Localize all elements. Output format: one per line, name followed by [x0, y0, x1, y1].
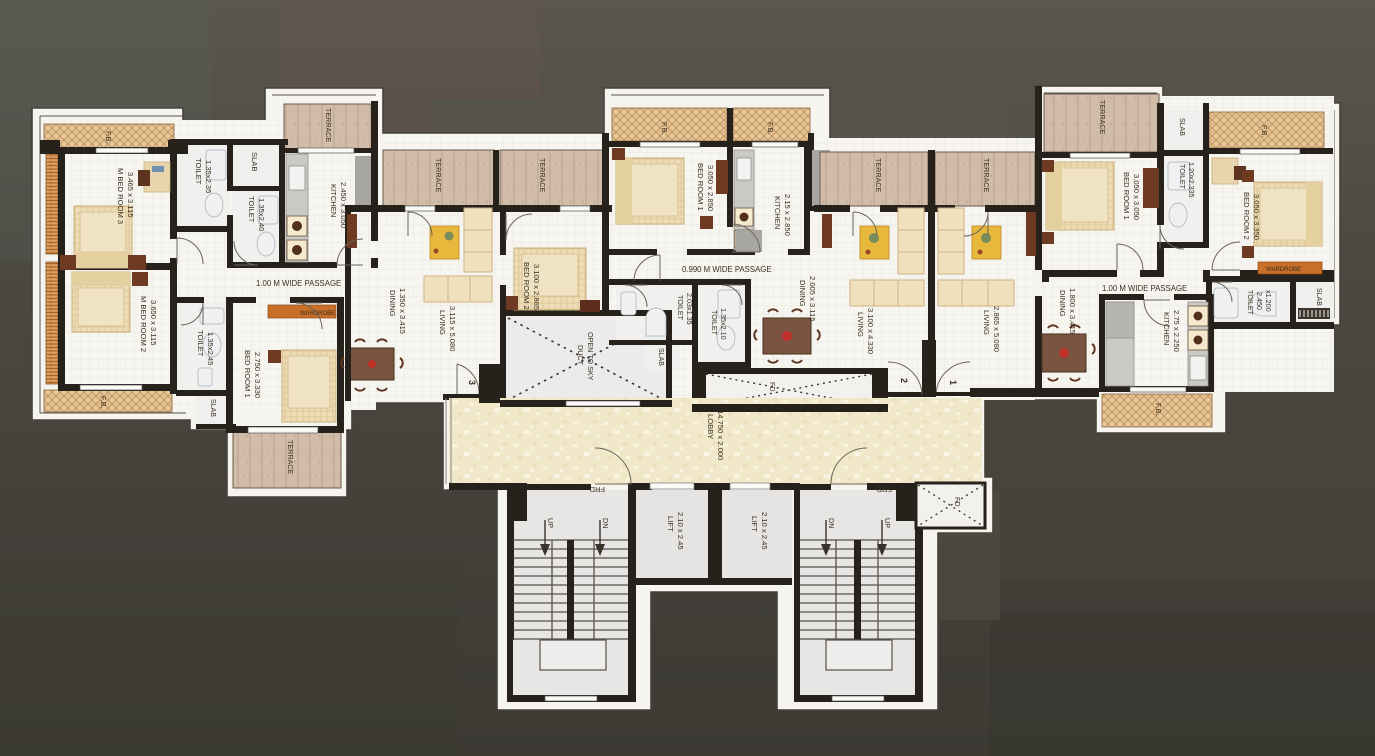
svg-text:M BED ROOM 2: M BED ROOM 2: [139, 296, 148, 352]
svg-text:UP: UP: [883, 518, 892, 528]
svg-text:WARDROBE: WARDROBE: [1266, 267, 1301, 273]
svg-text:1.20x2.335: 1.20x2.335: [1187, 162, 1196, 198]
svg-text:TOILET: TOILET: [247, 196, 256, 223]
svg-text:2.10 x 2.45: 2.10 x 2.45: [760, 512, 769, 550]
svg-text:KITCHEN: KITCHEN: [329, 184, 338, 217]
svg-text:TERRACE: TERRACE: [874, 158, 883, 193]
svg-text:TOILET: TOILET: [196, 330, 205, 357]
svg-text:FD: FD: [953, 497, 962, 507]
svg-text:BED ROOM 1: BED ROOM 1: [1122, 172, 1131, 220]
svg-text:DUCT: DUCT: [576, 345, 585, 366]
svg-text:FD: FD: [768, 382, 777, 392]
svg-text:FRD: FRD: [589, 485, 605, 494]
svg-text:1.350 x 3.415: 1.350 x 3.415: [398, 288, 407, 334]
svg-text:SLAB: SLAB: [209, 399, 216, 417]
svg-text:3.650 x 3.115: 3.650 x 3.115: [149, 300, 158, 345]
svg-text:TOILET: TOILET: [1178, 164, 1187, 190]
svg-text:OPEN TO SKY: OPEN TO SKY: [586, 332, 595, 381]
svg-text:3.050 x 3.350: 3.050 x 3.350: [1252, 194, 1261, 240]
svg-text:SLAB: SLAB: [1178, 118, 1185, 136]
svg-text:TERRACE: TERRACE: [286, 440, 295, 475]
svg-text:3.100 x 4.330: 3.100 x 4.330: [866, 308, 875, 354]
svg-text:BED ROOM 1: BED ROOM 1: [243, 350, 252, 398]
svg-text:UP: UP: [546, 518, 555, 528]
svg-text:1.00 M WIDE PASSAGE: 1.00 M WIDE PASSAGE: [256, 279, 341, 288]
svg-text:BED ROOM 2: BED ROOM 2: [522, 262, 531, 310]
svg-text:BED ROOM 2: BED ROOM 2: [1242, 192, 1251, 240]
svg-text:F.B.: F.B.: [104, 131, 113, 143]
svg-text:2.750 x 3.330: 2.750 x 3.330: [253, 352, 262, 398]
svg-text:SLAB: SLAB: [250, 152, 259, 171]
svg-text:SLAB: SLAB: [657, 348, 664, 366]
svg-text:TERRACE: TERRACE: [434, 158, 443, 193]
svg-text:KITCHEN: KITCHEN: [1162, 312, 1171, 345]
svg-text:3.050 x 2.850: 3.050 x 2.850: [706, 165, 715, 211]
svg-text:LIVING: LIVING: [982, 310, 991, 335]
svg-text:LIVING: LIVING: [438, 310, 447, 335]
svg-text:DN: DN: [827, 518, 836, 528]
svg-text:DINING: DINING: [798, 280, 807, 307]
svg-text:0.990 M WIDE PASSAGE: 0.990 M WIDE PASSAGE: [682, 265, 772, 274]
svg-text:TOILET: TOILET: [1246, 290, 1255, 316]
svg-text:1.35x2.35: 1.35x2.35: [204, 160, 213, 193]
svg-text:TERRACE: TERRACE: [324, 108, 333, 143]
svg-text:F.B.: F.B.: [766, 122, 775, 134]
svg-text:3.050 x 3.050: 3.050 x 3.050: [1132, 174, 1141, 220]
svg-text:1.35x2.10: 1.35x2.10: [719, 308, 728, 340]
svg-text:F.B.: F.B.: [1260, 125, 1269, 137]
svg-text:TERRACE: TERRACE: [1098, 100, 1107, 135]
svg-text:TOILET: TOILET: [676, 295, 685, 321]
svg-text:TOILET: TOILET: [194, 158, 203, 185]
svg-text:F.B.: F.B.: [660, 122, 669, 134]
svg-text:1.35x2.45: 1.35x2.45: [206, 332, 215, 365]
svg-text:2.865 x 5.080: 2.865 x 5.080: [992, 306, 1001, 352]
svg-text:M BED ROOM 3: M BED ROOM 3: [116, 168, 125, 224]
svg-text:2.10 x 2.45: 2.10 x 2.45: [676, 512, 685, 550]
svg-text:2.450 x 3.050: 2.450 x 3.050: [339, 182, 348, 228]
svg-text:3.465 x 3.115: 3.465 x 3.115: [126, 172, 135, 217]
svg-text:3.115 x 5.080: 3.115 x 5.080: [448, 306, 457, 351]
svg-text:F.B.: F.B.: [1154, 403, 1163, 415]
svg-text:LOBBY: LOBBY: [706, 414, 715, 439]
svg-text:2.005 x 3.115: 2.005 x 3.115: [808, 276, 817, 321]
svg-text:DINING: DINING: [388, 290, 397, 317]
svg-text:F.B.: F.B.: [99, 396, 108, 408]
svg-text:LIFT: LIFT: [666, 516, 675, 532]
svg-text:FRD: FRD: [876, 485, 892, 494]
svg-text:x1.200: x1.200: [1264, 290, 1273, 312]
svg-text:DINING: DINING: [1058, 290, 1067, 317]
svg-text:3: 3: [467, 380, 477, 385]
svg-text:2.15 x 2.850: 2.15 x 2.850: [783, 194, 792, 236]
svg-text:2.75 x 2.250: 2.75 x 2.250: [1172, 310, 1181, 352]
svg-text:BED ROOM 1: BED ROOM 1: [696, 163, 705, 211]
svg-text:2.450: 2.450: [1255, 292, 1264, 310]
svg-text:3.100 x 2.865: 3.100 x 2.865: [532, 264, 541, 310]
svg-text:TOILET: TOILET: [710, 310, 719, 336]
svg-text:2: 2: [899, 378, 909, 383]
svg-text:14.750 x 2.000: 14.750 x 2.000: [716, 410, 725, 460]
svg-text:SLAB: SLAB: [1315, 288, 1322, 306]
svg-text:1: 1: [948, 380, 958, 385]
svg-text:DN: DN: [601, 518, 610, 528]
svg-text:1.800 x 3.415: 1.800 x 3.415: [1068, 288, 1077, 334]
svg-text:2.03x1.35: 2.03x1.35: [685, 293, 694, 325]
svg-text:KITCHEN: KITCHEN: [773, 196, 782, 229]
svg-text:TERRACE: TERRACE: [982, 158, 991, 193]
svg-text:TERRACE: TERRACE: [538, 158, 547, 193]
svg-text:WARDROBE: WARDROBE: [300, 311, 335, 317]
svg-text:LIFT: LIFT: [750, 516, 759, 532]
svg-text:LIVING: LIVING: [856, 312, 865, 337]
svg-text:1.35x2.40: 1.35x2.40: [257, 198, 266, 231]
svg-text:1.00 M WIDE PASSAGE: 1.00 M WIDE PASSAGE: [1102, 284, 1187, 293]
